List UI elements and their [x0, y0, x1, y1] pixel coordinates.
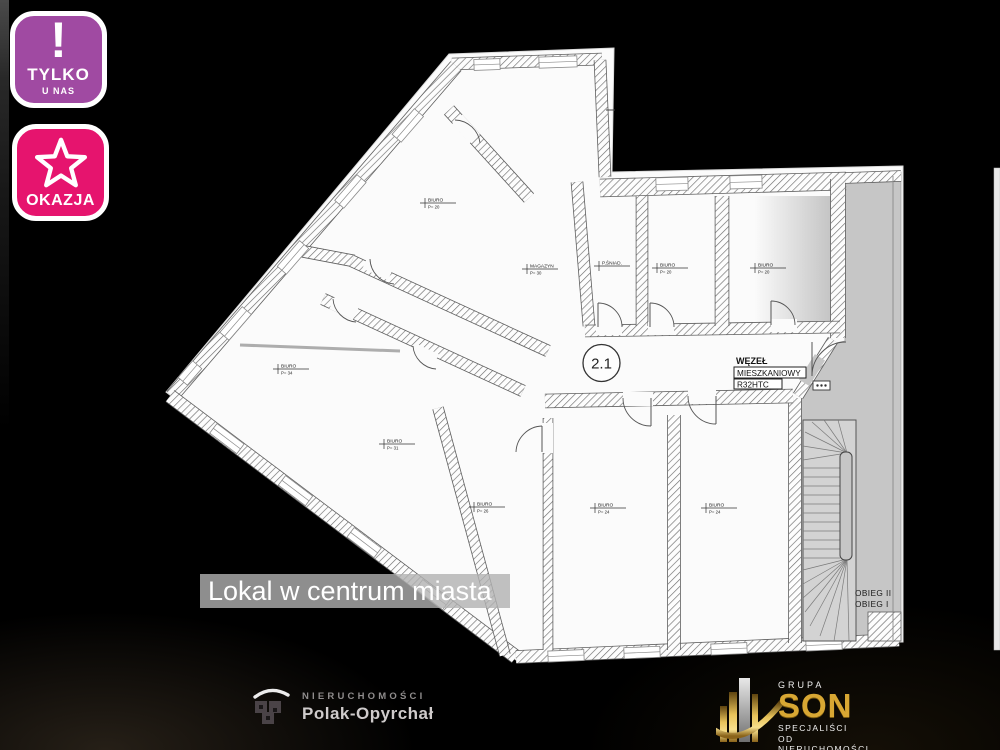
agency-logo: NIERUCHOMOŚCI Polak-Opyrchał	[252, 682, 434, 726]
exclamation-icon: !	[50, 19, 67, 62]
son-tagline-1: SPECJALIŚCI	[778, 723, 883, 733]
star-icon	[32, 136, 90, 190]
caption-bar: Lokal w centrum miasta	[200, 574, 510, 608]
svg-text:P= 20: P= 20	[758, 270, 770, 275]
svg-text:P= 26: P= 26	[477, 509, 489, 514]
svg-text:R32HTC: R32HTC	[737, 381, 769, 390]
svg-text:P= 20: P= 20	[428, 205, 440, 210]
brand-name: Polak-Opyrchał	[302, 704, 434, 724]
caption-text: Lokal w centrum miasta	[208, 576, 492, 606]
svg-text:BIURO: BIURO	[477, 502, 492, 508]
scan-page-edge	[994, 168, 1000, 650]
svg-text:P= 24: P= 24	[598, 510, 610, 515]
svg-text:P= 30: P= 30	[530, 271, 542, 276]
svg-text:P= 20: P= 20	[660, 270, 672, 275]
svg-text:P= 24: P= 24	[709, 510, 721, 515]
svg-text:BIURO: BIURO	[660, 263, 675, 269]
svg-text:BIURO: BIURO	[428, 198, 443, 204]
building-blocks-icon	[252, 682, 292, 726]
unit-number: 2.1	[583, 345, 620, 382]
badge-tylko-u-nas: ! TYLKO U NAS	[10, 11, 107, 108]
listing-image: OBIEG II OBIEG I 2.1 WĘZEŁ MIESZKANIOWY …	[0, 0, 1000, 750]
scan-shading	[728, 196, 833, 328]
svg-text:BIURO: BIURO	[709, 503, 724, 509]
svg-text:P= 31: P= 31	[387, 446, 399, 451]
svg-text:P= 34: P= 34	[281, 371, 293, 376]
stair-eye	[840, 452, 852, 560]
son-name: SON	[778, 690, 883, 721]
badge-tylko-line2: U NAS	[42, 86, 75, 96]
stair-label-obieg1: OBIEG I	[855, 599, 889, 609]
svg-text:WĘZEŁ: WĘZEŁ	[736, 356, 768, 366]
svg-text:BIURO: BIURO	[281, 364, 296, 370]
floor-plan: OBIEG II OBIEG I 2.1 WĘZEŁ MIESZKANIOWY …	[0, 0, 1000, 750]
badge-tylko-line1: TYLKO	[27, 65, 90, 85]
svg-text:MIESZKANIOWY: MIESZKANIOWY	[737, 369, 801, 378]
grupa-son-logo: GRUPA SON SPECJALIŚCI OD NIERUCHOMOŚCI	[708, 668, 883, 748]
badge-okazja: OKAZJA	[12, 124, 109, 221]
badge-okazja-label: OKAZJA	[26, 192, 95, 210]
svg-text:BIURO: BIURO	[387, 439, 402, 445]
skyscraper-icon	[716, 672, 786, 746]
svg-text:BIURO: BIURO	[758, 263, 773, 269]
svg-text:2.1: 2.1	[591, 356, 612, 373]
svg-text:MAGAZYN: MAGAZYN	[530, 264, 554, 270]
brand-line: NIERUCHOMOŚCI	[302, 691, 434, 702]
son-tagline-2: OD NIERUCHOMOŚCI	[778, 734, 883, 750]
stair-label-obieg2: OBIEG II	[855, 588, 891, 598]
svg-text:BIURO: BIURO	[598, 503, 613, 509]
